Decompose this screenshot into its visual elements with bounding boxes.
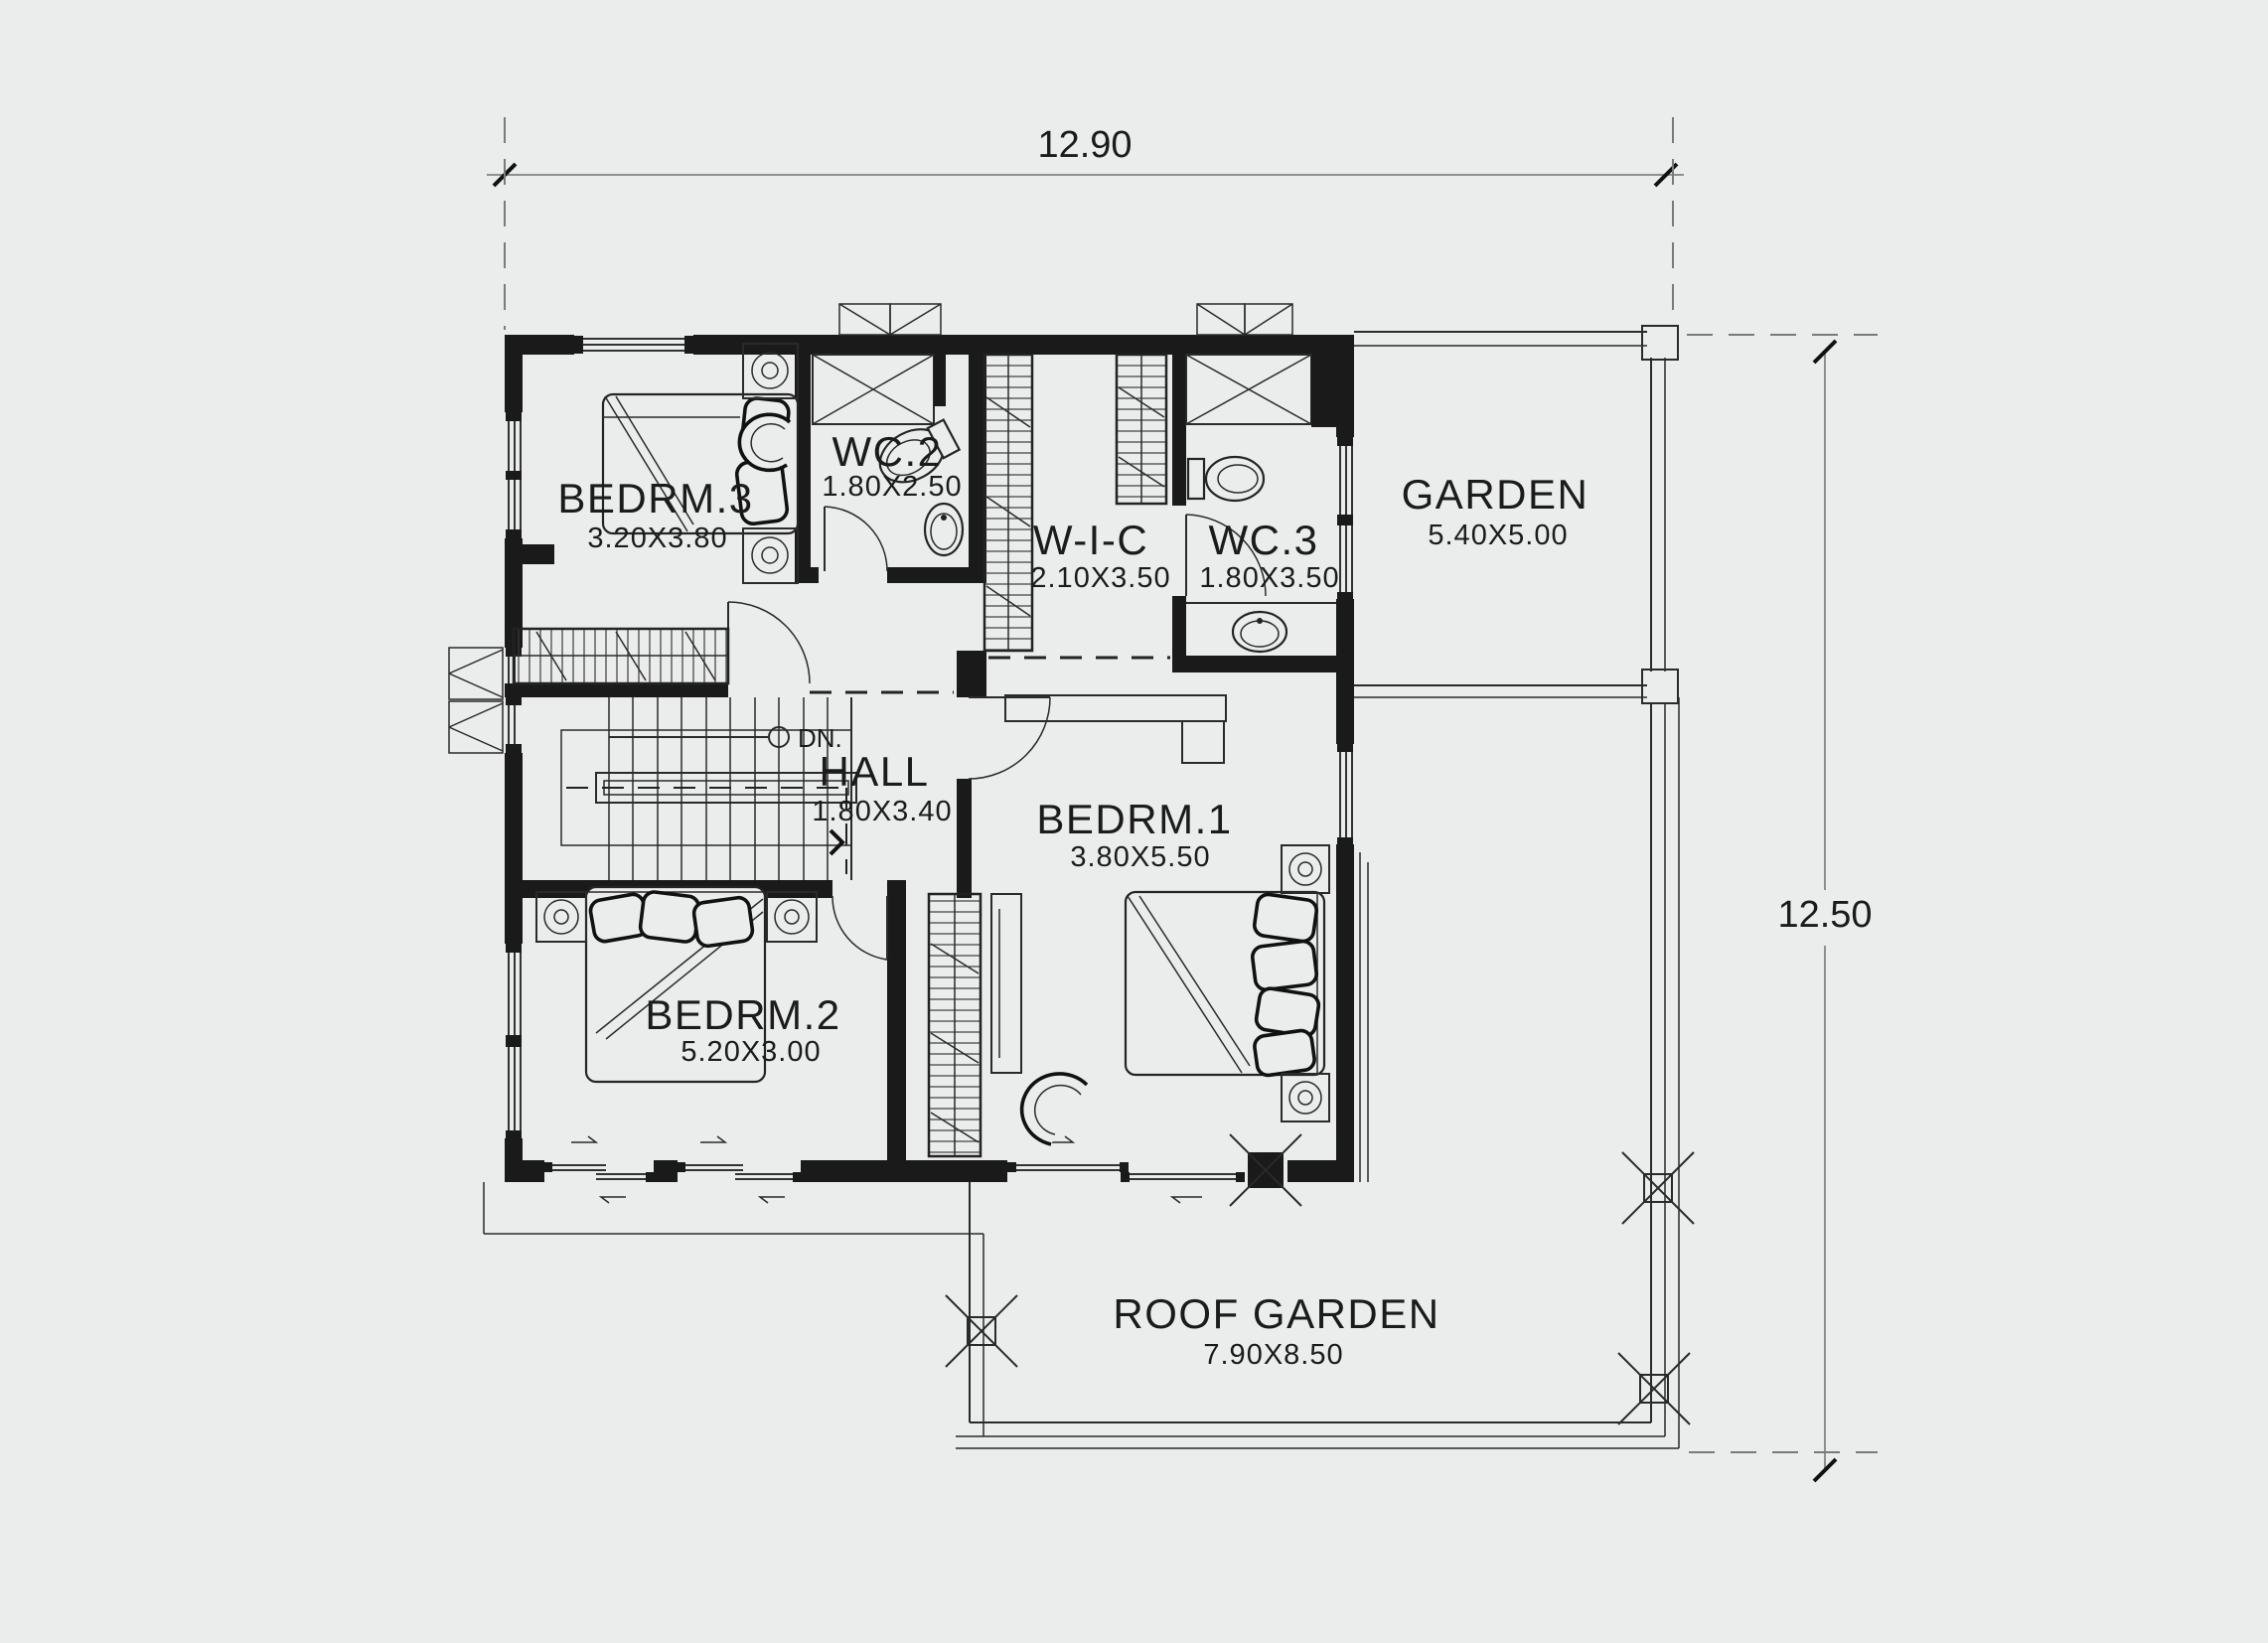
closet-icon — [514, 629, 728, 683]
closet-icon — [1117, 355, 1166, 504]
room-label-roof-garden: ROOF GARDEN — [1113, 1290, 1439, 1337]
room-label-wc3: WC.3 — [1209, 517, 1319, 563]
dimension-top-label: 12.90 — [1037, 124, 1132, 166]
room-label-bedrm3: BEDRM.3 — [557, 475, 753, 522]
closet-icon — [984, 355, 1032, 651]
room-label-wic: W-I-C — [1033, 517, 1148, 563]
room-size-wc3: 1.80X3.50 — [1199, 562, 1339, 594]
dimension-right-label: 12.50 — [1777, 894, 1872, 936]
room-size-garden: 5.40X5.00 — [1428, 520, 1568, 551]
floor-plan-drawing: 12.90 12.50 — [0, 0, 2268, 1643]
closet-icon — [929, 894, 981, 1156]
room-size-wc2: 1.80X2.50 — [822, 471, 962, 503]
floor-plan-page: 12.90 12.50 — [0, 0, 2268, 1643]
window — [574, 336, 693, 354]
room-size-bedrm3: 3.20X3.80 — [587, 523, 727, 554]
chair-icon — [739, 414, 790, 470]
room-label-bedrm2: BEDRM.2 — [645, 991, 840, 1038]
bed-icon — [1126, 892, 1324, 1077]
room-label-wc2: WC.2 — [832, 428, 943, 475]
room-size-hall: 1.80X3.40 — [812, 796, 952, 827]
sink-icon — [925, 504, 963, 555]
room-size-wic: 2.10X3.50 — [1030, 562, 1170, 594]
room-size-bedrm1: 3.80X5.50 — [1070, 841, 1210, 873]
room-label-hall: HALL — [819, 748, 929, 795]
room-size-roof-garden: 7.90X8.50 — [1203, 1339, 1343, 1371]
room-label-garden: GARDEN — [1402, 471, 1589, 518]
room-label-bedrm1: BEDRM.1 — [1036, 796, 1232, 842]
toilet-icon — [1188, 457, 1264, 501]
room-size-bedrm2: 5.20X3.00 — [680, 1036, 821, 1068]
